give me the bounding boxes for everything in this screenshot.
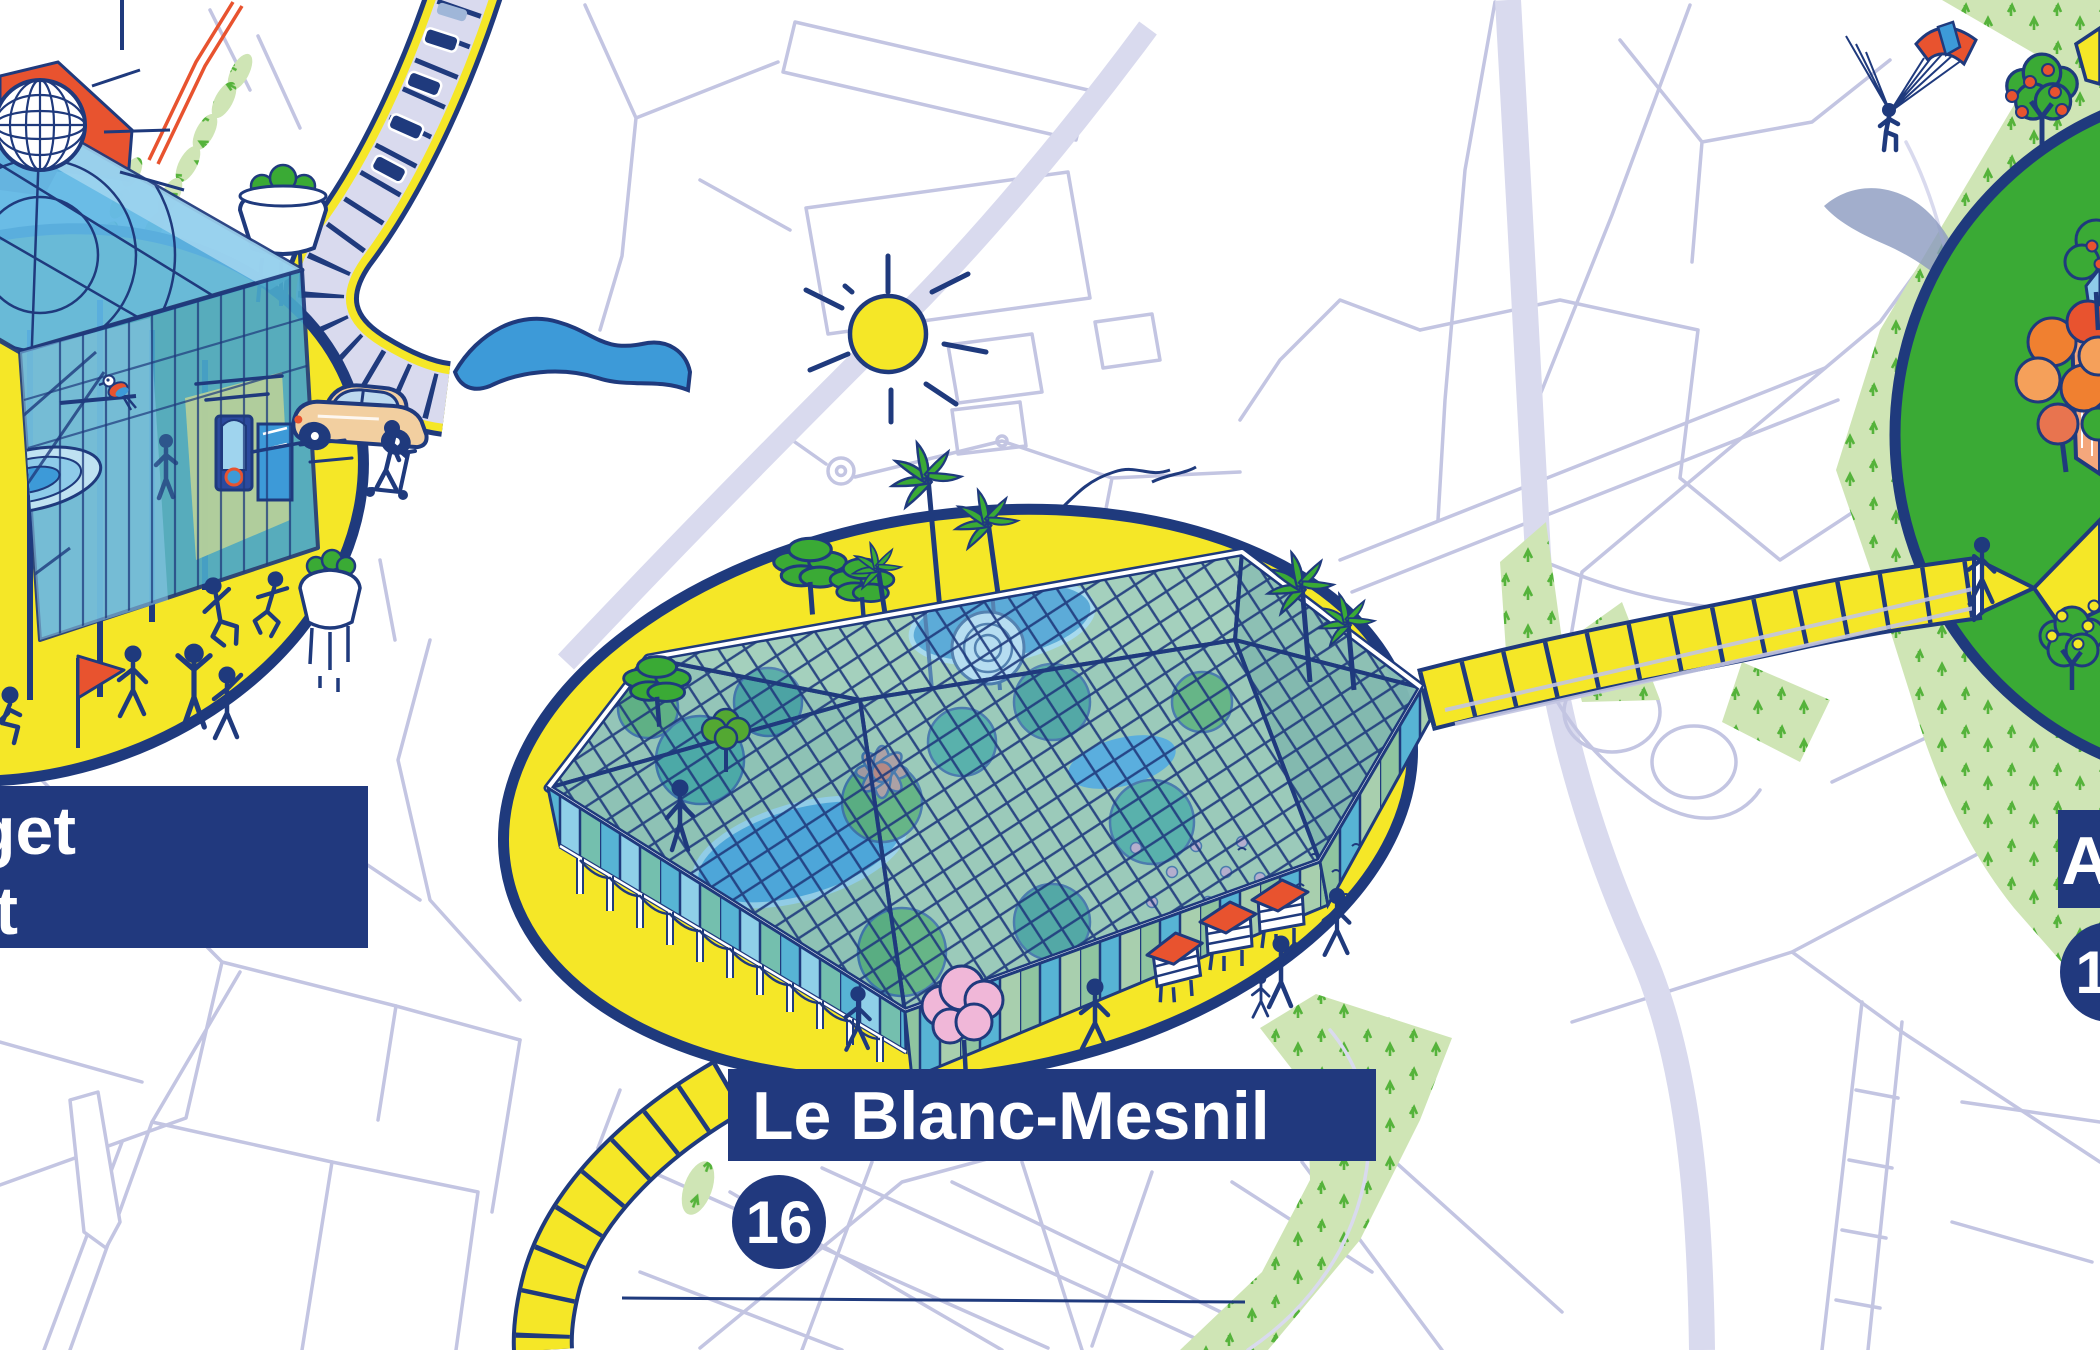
center-line-badge[interactable]: 16 (732, 1175, 826, 1269)
station-name-line2: t (0, 873, 18, 949)
station-name: Le Blanc-Mesnil (752, 1078, 1270, 1154)
illustrated-map: get t Le Blanc-Mesnil 16 A 1 (0, 0, 2100, 1350)
railway (321, 0, 470, 399)
line-number: 16 (746, 1189, 813, 1256)
station-name-line1: get (0, 793, 76, 869)
metro-line-segment-south (543, 1086, 730, 1350)
right-station-label[interactable]: A (2058, 810, 2100, 908)
left-station-label[interactable]: get t (0, 786, 368, 949)
station-name: A (2061, 823, 2100, 899)
planter-icon (300, 550, 360, 692)
river (455, 319, 690, 390)
geodesic-globe-icon (0, 80, 85, 170)
center-station-label[interactable]: Le Blanc-Mesnil (728, 1069, 1376, 1161)
line-number: 1 (2075, 939, 2100, 1006)
